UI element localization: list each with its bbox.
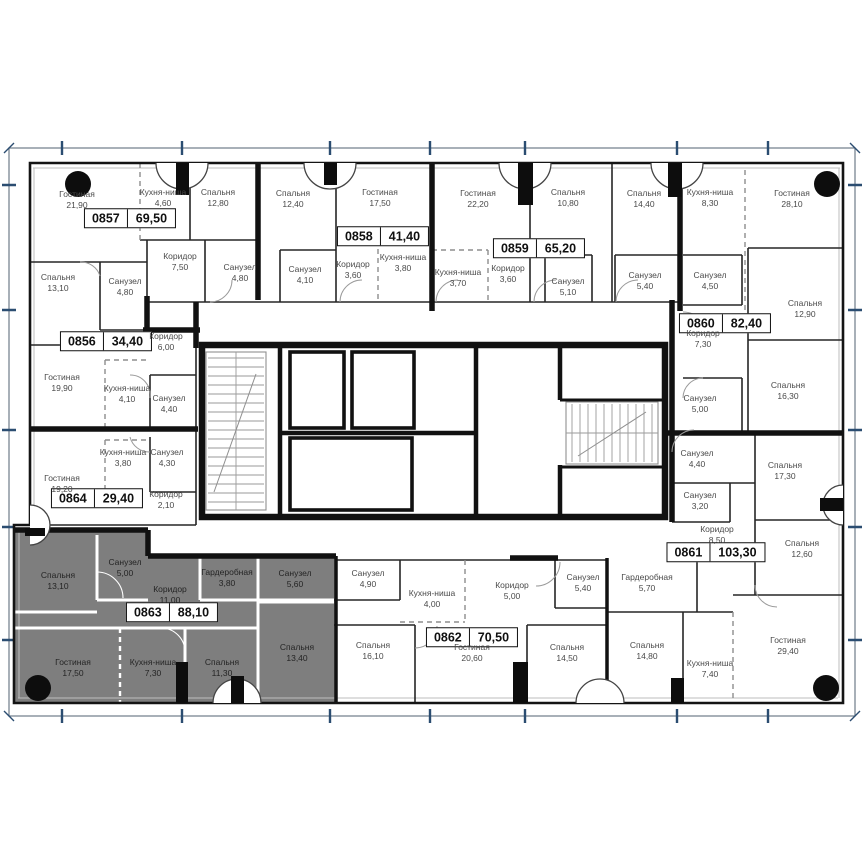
unit-label-0860[interactable]: 0860 82,40	[679, 313, 771, 333]
unit-id: 0857	[85, 209, 128, 227]
unit-id: 0863	[127, 603, 170, 621]
stairs-right	[566, 402, 658, 464]
unit-label-0859[interactable]: 0859 65,20	[493, 238, 585, 258]
unit-area: 82,40	[723, 314, 770, 332]
unit-area: 103,30	[710, 543, 764, 561]
unit-label-0863[interactable]: 0863 88,10	[126, 602, 218, 622]
unit-area: 69,50	[128, 209, 175, 227]
unit-label-0861[interactable]: 0861 103,30	[666, 542, 765, 562]
unit-label-0864[interactable]: 0864 29,40	[51, 488, 143, 508]
floor-plan-drawing	[0, 0, 864, 864]
unit-id: 0858	[338, 227, 381, 245]
unit-id: 0859	[494, 239, 537, 257]
unit-label-0857[interactable]: 0857 69,50	[84, 208, 176, 228]
unit-area: 34,40	[104, 332, 151, 350]
unit-id: 0861	[667, 543, 710, 561]
unit-id: 0860	[680, 314, 723, 332]
unit-area: 65,20	[537, 239, 584, 257]
unit-area: 29,40	[95, 489, 142, 507]
building-core	[202, 345, 665, 517]
unit-id: 0856	[61, 332, 104, 350]
unit-label-0862[interactable]: 0862 70,50	[426, 627, 518, 647]
unit-area: 88,10	[170, 603, 217, 621]
unit-label-0858[interactable]: 0858 41,40	[337, 226, 429, 246]
stairs-left	[206, 352, 266, 510]
unit-label-0856[interactable]: 0856 34,40	[60, 331, 152, 351]
unit-id: 0864	[52, 489, 95, 507]
unit-id: 0862	[427, 628, 470, 646]
unit-area: 41,40	[381, 227, 428, 245]
unit-area: 70,50	[470, 628, 517, 646]
floor-plan-canvas: 0857 69,50 0858 41,40 0859 65,20 0860 82…	[0, 0, 864, 864]
